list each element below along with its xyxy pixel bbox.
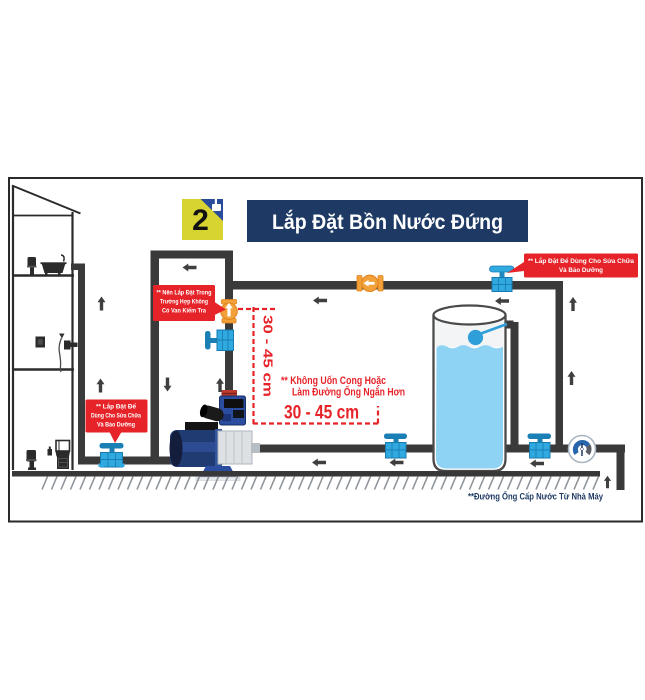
svg-text:** Không Uốn Cong Hoặc: ** Không Uốn Cong Hoặc xyxy=(281,375,386,387)
svg-text:Dùng Cho Sửa Chữa: Dùng Cho Sửa Chữa xyxy=(91,413,141,420)
svg-text:Có Van Kiểm Tra: Có Van Kiểm Tra xyxy=(162,308,207,315)
svg-text:30 - 45 cm: 30 - 45 cm xyxy=(261,315,276,397)
svg-text:** Nên Lắp Đặt Trong: ** Nên Lắp Đặt Trong xyxy=(157,290,212,297)
svg-text:30 - 45 cm: 30 - 45 cm xyxy=(284,403,359,424)
svg-text:Trường Hợp Không: Trường Hợp Không xyxy=(160,299,208,306)
svg-text:2: 2 xyxy=(192,204,209,237)
svg-text:** Lắp Đặt Để Dùng Cho Sửa Chữ: ** Lắp Đặt Để Dùng Cho Sửa Chữa xyxy=(528,256,634,265)
svg-text:Và Bảo Dưỡng: Và Bảo Dưỡng xyxy=(97,422,135,429)
svg-text:Và Bảo Dưỡng: Và Bảo Dưỡng xyxy=(559,267,603,274)
svg-text:**Đường Ống Cấp Nước Từ Nhà Má: **Đường Ống Cấp Nước Từ Nhà Máy xyxy=(468,491,604,503)
svg-text:Lắp Đặt Bồn Nước Đứng: Lắp Đặt Bồn Nước Đứng xyxy=(272,210,503,234)
svg-text:Làm Đường Ống Ngắn Hơn: Làm Đường Ống Ngắn Hơn xyxy=(292,385,405,399)
svg-text:** Lắp Đặt Để: ** Lắp Đặt Để xyxy=(96,404,137,411)
